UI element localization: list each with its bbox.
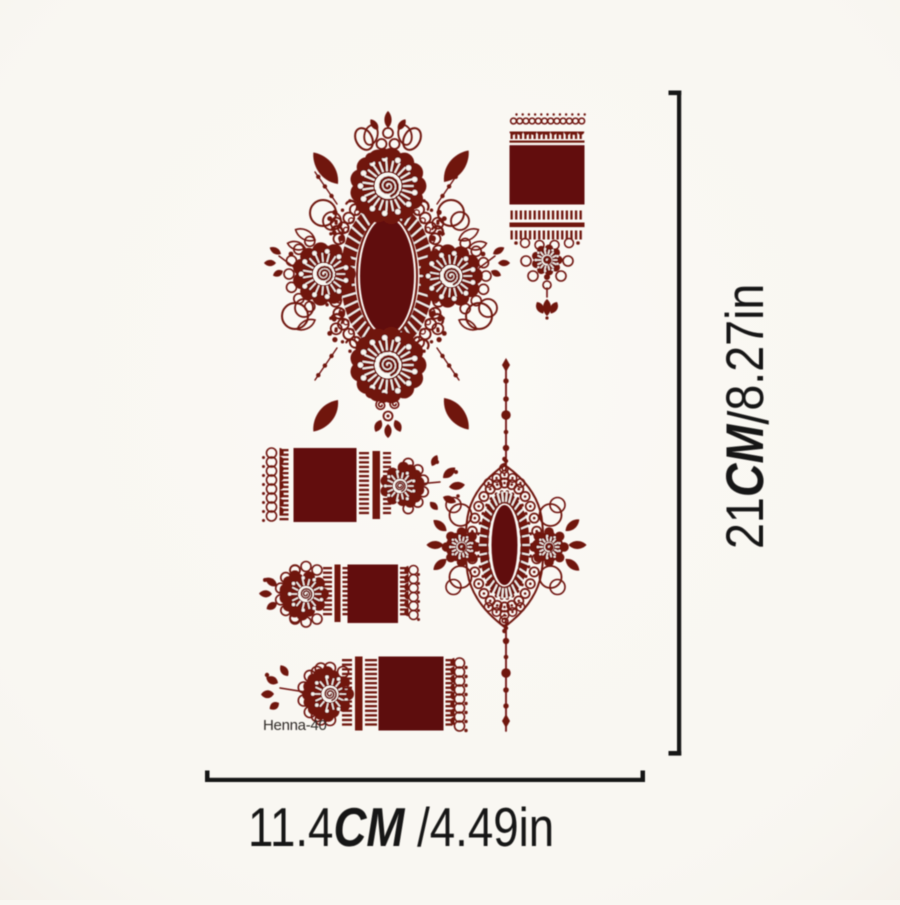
- svg-text:Henna-40: Henna-40: [263, 717, 326, 734]
- svg-text:21CM/8.27in: 21CM/8.27in: [715, 284, 781, 549]
- svg-text:11.4CM /4.49in: 11.4CM /4.49in: [248, 796, 554, 858]
